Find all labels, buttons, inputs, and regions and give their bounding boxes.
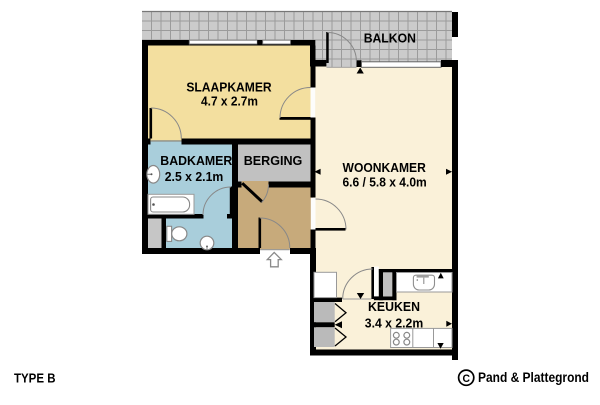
svg-text:6.6 / 5.8 x 4.0m: 6.6 / 5.8 x 4.0m <box>342 174 426 189</box>
svg-text:BALKON: BALKON <box>364 31 416 46</box>
svg-text:KEUKEN: KEUKEN <box>368 299 420 314</box>
svg-text:TYPE B: TYPE B <box>14 370 56 385</box>
svg-text:BERGING: BERGING <box>244 153 303 168</box>
svg-text:4.7 x 2.7m: 4.7 x 2.7m <box>201 93 258 108</box>
svg-text:3.4 x 2.2m: 3.4 x 2.2m <box>365 315 423 330</box>
svg-text:BADKAMER: BADKAMER <box>160 153 232 168</box>
svg-text:WOONKAMER: WOONKAMER <box>343 160 426 175</box>
svg-text:2.5 x 2.1m: 2.5 x 2.1m <box>165 169 224 184</box>
svg-text:C: C <box>462 373 470 385</box>
svg-text:Pand & Plattegrond: Pand & Plattegrond <box>478 370 589 385</box>
